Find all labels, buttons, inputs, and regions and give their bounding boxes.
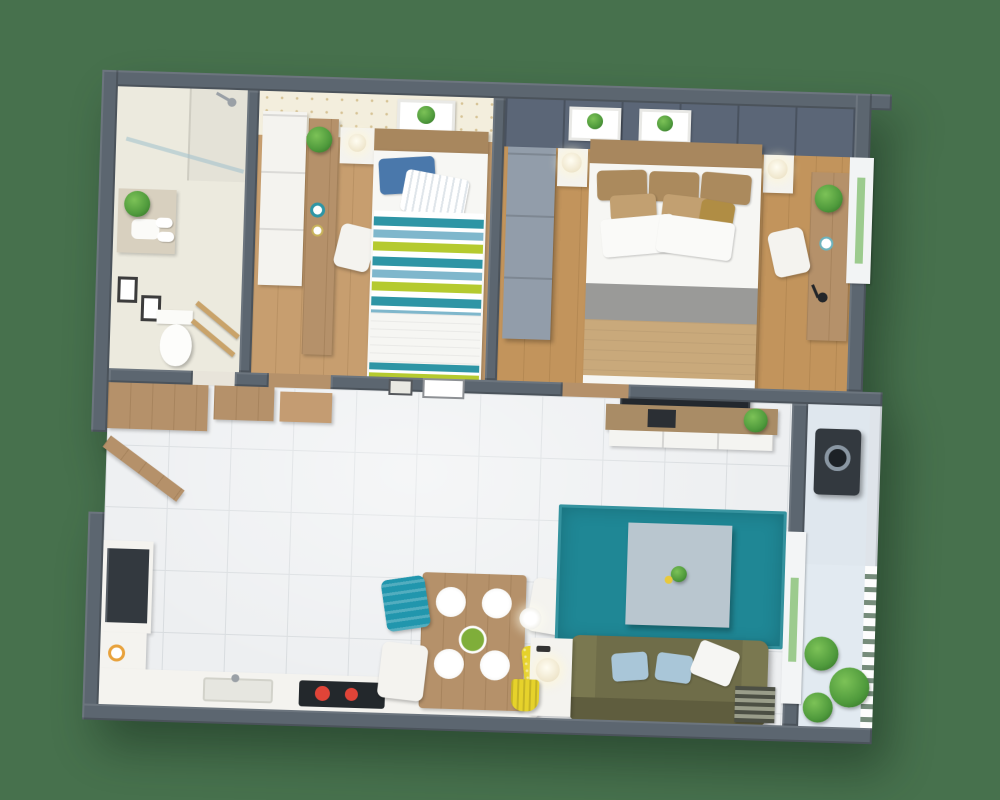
kids-door-threshold [269, 373, 331, 389]
kids-sheet-fold [369, 312, 481, 365]
kitchen-oven-front [105, 548, 149, 623]
wall-outer-right-mid [847, 281, 866, 391]
rolled-towel-2 [157, 232, 174, 243]
toilet-tank [156, 310, 192, 325]
floor-mat-striped [734, 686, 775, 723]
dining-chair-white-2 [376, 641, 428, 702]
yellow-basket [510, 679, 539, 712]
kitchen-upper-cabinet-1 [213, 385, 274, 421]
rolled-towel-1 [155, 218, 172, 229]
side-table-remote [536, 646, 550, 652]
hall-picture-panel [422, 378, 465, 399]
sofa-pillow-blue-2 [654, 652, 693, 685]
master-wardrobe [502, 147, 556, 340]
bathroom-door-threshold [193, 371, 235, 386]
scene-background [0, 0, 1000, 800]
hall-intercom-panel [388, 379, 412, 396]
master-blanket-tan [583, 319, 757, 380]
master-door-threshold [562, 382, 628, 398]
wall-rooms-bottom-1 [109, 368, 193, 385]
apartment-floor-plan [82, 70, 892, 744]
kids-duvet-striped [371, 210, 484, 315]
bathroom-frame-1 [117, 276, 138, 303]
kitchen-cooktop [299, 680, 386, 709]
wall-rooms-bottom-2 [235, 372, 269, 387]
console-decor-box [647, 409, 676, 428]
kitchen-upper-cabinet-2 [279, 392, 332, 424]
entry-wardrobe [107, 382, 208, 431]
kids-wardrobe [258, 111, 307, 286]
sofa-pillow-blue-1 [611, 651, 649, 682]
dining-chair-teal [380, 575, 431, 633]
master-throw-gray [585, 283, 758, 324]
wall-outer-right-upper [854, 93, 872, 159]
